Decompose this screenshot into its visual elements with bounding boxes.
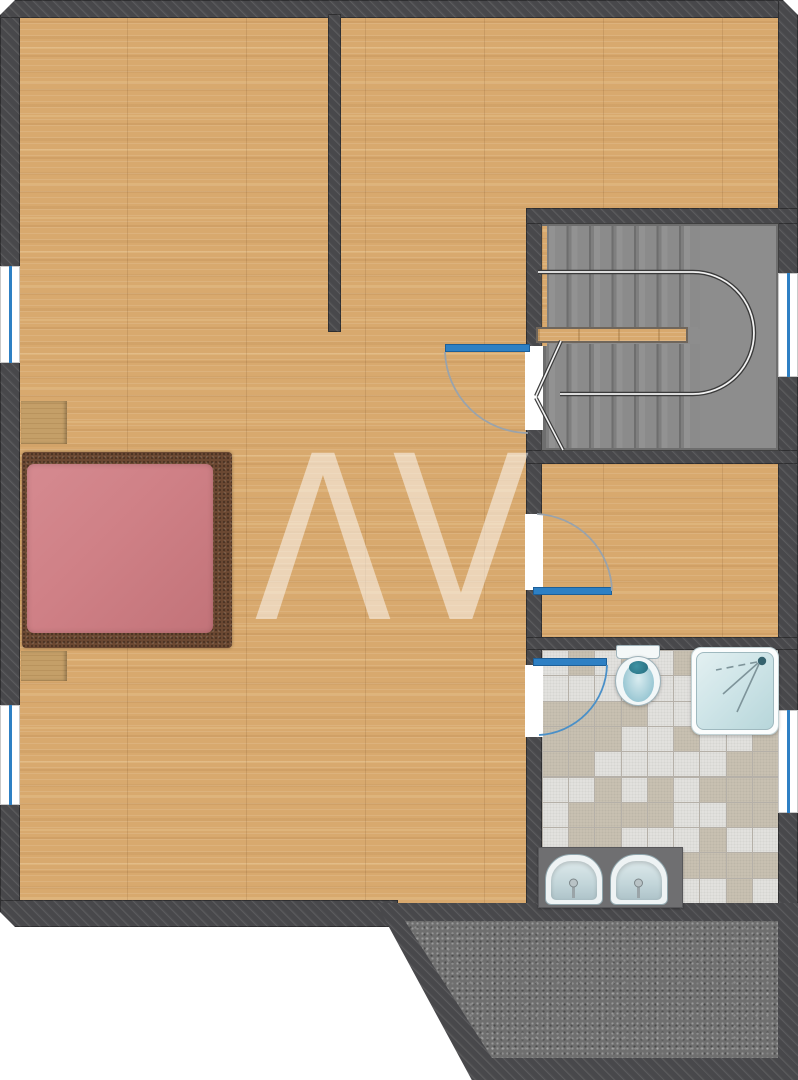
bathroom-tile xyxy=(568,675,595,701)
wall-partition xyxy=(328,14,341,332)
bathroom-tile xyxy=(699,852,726,878)
bathroom-tile xyxy=(568,777,595,803)
wall-bottom-main xyxy=(0,900,398,927)
bathroom-tile xyxy=(699,878,726,903)
bathroom-tile xyxy=(752,777,778,803)
bathroom-tile xyxy=(673,777,700,803)
toilet xyxy=(615,656,661,706)
stair-mid-landing-divider xyxy=(536,327,688,343)
door-leaf-small-room xyxy=(533,587,612,595)
toilet-flush xyxy=(629,661,648,674)
bathroom-tile xyxy=(568,751,595,777)
bathroom-tile xyxy=(542,777,569,803)
nightstand-bottom xyxy=(21,651,67,681)
bathroom-tile xyxy=(726,777,753,803)
bathroom-tile xyxy=(542,802,569,828)
window-left-lower xyxy=(0,705,20,805)
bathroom-tile xyxy=(542,675,569,701)
bathroom-tile xyxy=(647,726,674,752)
sink-left xyxy=(545,854,603,905)
bathroom-tile xyxy=(568,726,595,752)
bathroom-tile xyxy=(752,878,778,903)
bathroom-tile xyxy=(594,701,621,727)
bathroom-tile xyxy=(752,802,778,828)
window-right-stair xyxy=(778,273,798,377)
wall-stair-bottom xyxy=(526,450,798,464)
bathroom-tile xyxy=(542,701,569,727)
bathroom-tile xyxy=(699,827,726,853)
door-opening-bathroom xyxy=(525,665,543,737)
nightstand-top xyxy=(21,401,67,444)
door-leaf-bathroom xyxy=(533,658,607,666)
bathroom-tile xyxy=(542,726,569,752)
floor-plan: ΛV xyxy=(0,0,798,1080)
door-opening-stair-hall xyxy=(525,346,543,430)
bathroom-tile xyxy=(594,777,621,803)
bathroom-tile xyxy=(647,802,674,828)
window-glass xyxy=(9,266,12,363)
bathroom-tile xyxy=(647,701,674,727)
window-left-upper xyxy=(0,266,20,363)
wall-stair-top xyxy=(526,208,798,224)
bathroom-tile xyxy=(594,726,621,752)
bathroom-tile xyxy=(699,777,726,803)
window-right-bath xyxy=(778,710,798,813)
bed-mattress xyxy=(27,464,213,633)
door-opening-small-room xyxy=(525,514,543,590)
bathroom-tile xyxy=(752,852,778,878)
bathroom-tile xyxy=(568,802,595,828)
bathroom-tile xyxy=(673,802,700,828)
bathroom-tile xyxy=(752,751,778,777)
window-glass xyxy=(787,710,790,813)
bathroom-tile xyxy=(542,751,569,777)
sink-bowl xyxy=(551,861,597,900)
window-glass xyxy=(787,273,790,377)
door-leaf-stair-hall xyxy=(445,344,530,352)
bathroom-tile xyxy=(594,802,621,828)
stair-treads-upper xyxy=(544,226,700,329)
sink-bowl xyxy=(616,861,662,900)
bathroom-tile xyxy=(568,701,595,727)
bathroom-tile xyxy=(726,852,753,878)
shower xyxy=(691,647,779,735)
bathroom-tile xyxy=(726,751,753,777)
bathroom-tile xyxy=(752,827,778,853)
bathroom-tile xyxy=(621,777,648,803)
stair-divider-cap xyxy=(686,327,698,343)
bathroom-tile xyxy=(621,802,648,828)
bathroom-tile xyxy=(699,751,726,777)
bathroom-tile xyxy=(647,777,674,803)
bathroom-tile xyxy=(726,878,753,903)
bathroom-tile xyxy=(726,802,753,828)
bathroom-tile xyxy=(594,751,621,777)
bathroom-tile xyxy=(673,751,700,777)
stair-treads-lower xyxy=(544,344,700,448)
bathroom-tile xyxy=(621,726,648,752)
bathroom-tile xyxy=(621,751,648,777)
bathroom-tile xyxy=(726,827,753,853)
bathroom-tile xyxy=(699,802,726,828)
sink-right xyxy=(610,854,668,905)
wall-top xyxy=(0,0,798,18)
window-glass xyxy=(9,705,12,805)
shower-tray xyxy=(696,652,774,730)
bathroom-tile xyxy=(647,751,674,777)
